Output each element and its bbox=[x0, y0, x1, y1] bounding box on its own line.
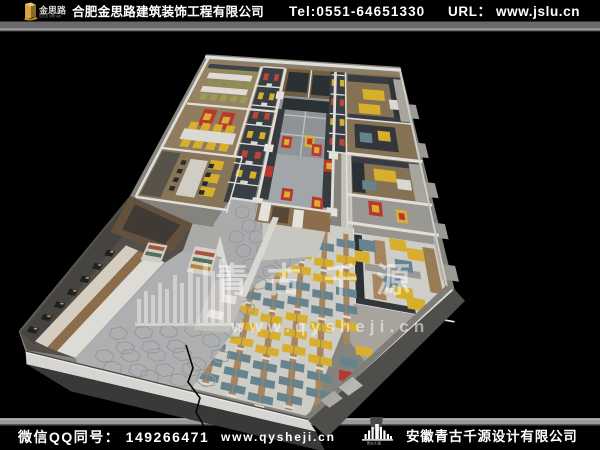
svg-text:安徽青古千源设计有限公司: 安徽青古千源设计有限公司 bbox=[406, 428, 578, 444]
svg-text:千源: 千源 bbox=[324, 262, 428, 300]
svg-text:微信QQ同号： 149266471: 微信QQ同号： 149266471 bbox=[17, 429, 209, 445]
svg-text:合肥金思路建筑装饰工程有限公司: 合肥金思路建筑装饰工程有限公司 bbox=[71, 4, 264, 19]
svg-text:www.qysheji.cn: www.qysheji.cn bbox=[220, 430, 336, 444]
svg-text:Tel:0551-64651330: Tel:0551-64651330 bbox=[289, 4, 425, 19]
svg-text:青古: 青古 bbox=[215, 262, 319, 300]
svg-text:www.qysheji.cn: www.qysheji.cn bbox=[230, 317, 429, 336]
svg-text:青古千源: 青古千源 bbox=[367, 441, 382, 446]
svg-text:GOLD SIROAD: GOLD SIROAD bbox=[39, 15, 62, 19]
svg-text:URL： www.jslu.cn: URL： www.jslu.cn bbox=[448, 4, 580, 19]
